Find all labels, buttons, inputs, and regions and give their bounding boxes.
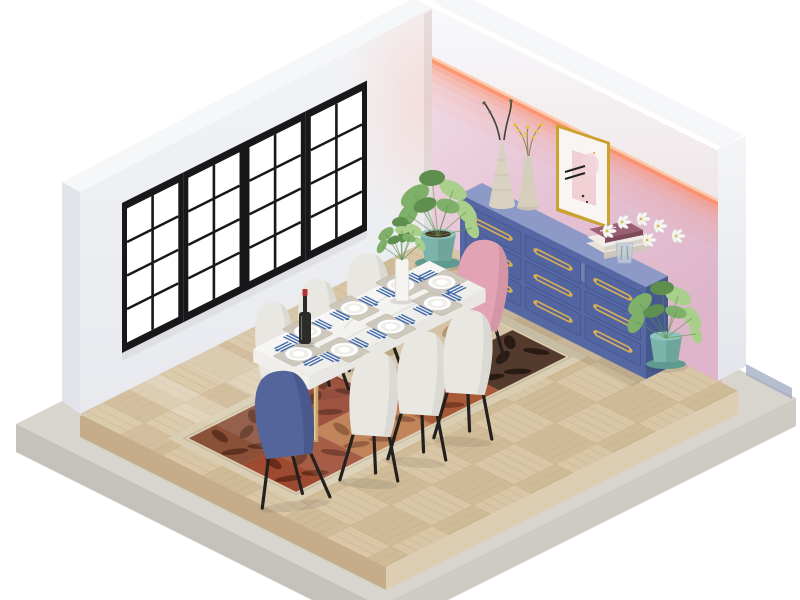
bottle-cap (303, 289, 308, 296)
art-gold-speck (593, 152, 595, 154)
render-stage (0, 0, 800, 600)
art-dot (582, 195, 585, 198)
art-frame (556, 124, 610, 229)
art-dot (586, 201, 588, 203)
left-wall-end-edge (62, 182, 80, 414)
centerpiece-vase (396, 259, 409, 301)
window-panel-2 (183, 142, 244, 323)
window-panel-3 (245, 111, 306, 292)
window-panel-1 (122, 172, 183, 353)
window-panel-4 (306, 81, 367, 262)
right-wall-end-column (718, 136, 746, 381)
dining-room-scene (0, 0, 800, 600)
